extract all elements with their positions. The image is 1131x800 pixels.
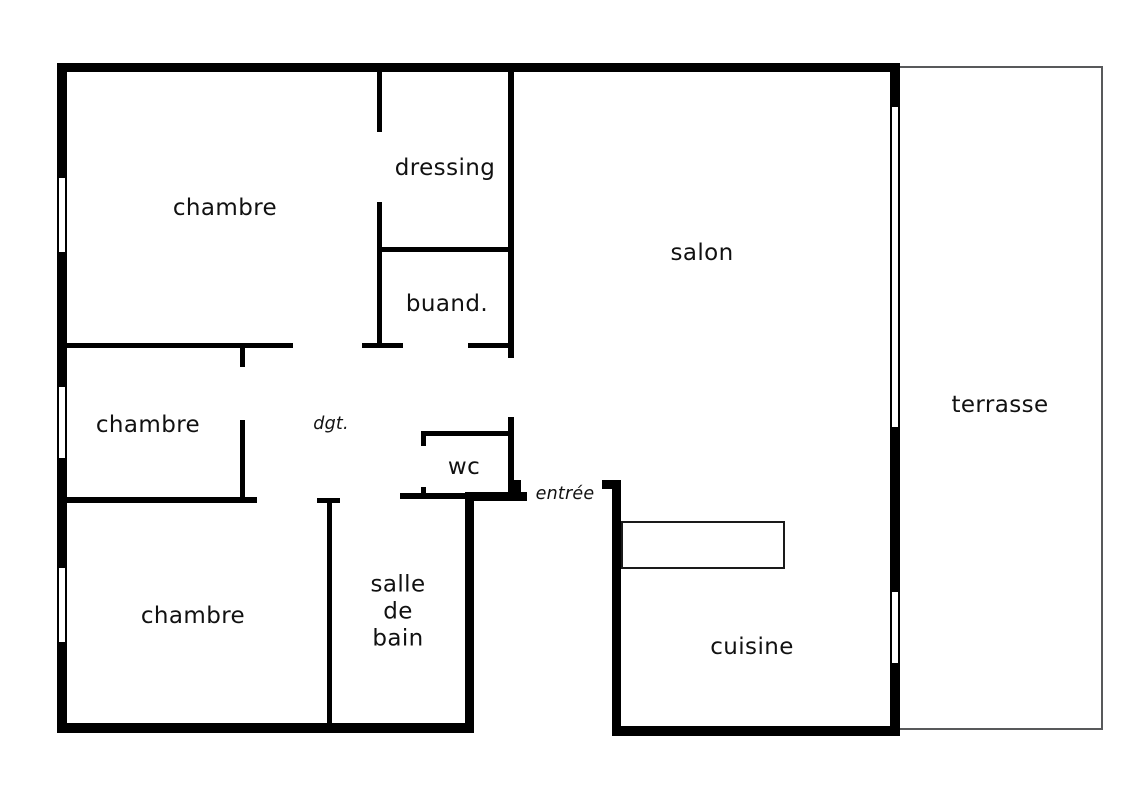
wall-bedroom-middle-right <box>240 420 245 502</box>
room-label-bedroom-middle: chambre <box>96 412 200 438</box>
wall-wc-bottom <box>400 493 512 499</box>
room-label-bedroom-top: chambre <box>173 195 277 221</box>
room-label-bathroom-line3: bain <box>370 626 425 653</box>
wall-exterior-right-b <box>890 427 900 592</box>
window-bedroom-middle <box>57 387 67 458</box>
wall-exterior-left-a <box>57 63 67 178</box>
room-label-bathroom-line2: de <box>370 599 425 626</box>
room-label-bathroom: salle de bain <box>370 572 425 653</box>
room-label-dressing: dressing <box>395 155 495 181</box>
room-label-bathroom-line1: salle <box>370 572 425 599</box>
wall-wc-right <box>508 417 514 480</box>
door-jamb-bedroom-top <box>240 348 245 367</box>
wall-exterior-left-b <box>57 252 67 387</box>
kitchen-counter <box>621 521 785 569</box>
wall-laundry-bottom-right <box>468 343 512 348</box>
door-jamb-wc-upper <box>421 431 426 446</box>
wall-kitchen-left <box>612 480 621 736</box>
wall-bedroom-top-bottom <box>65 343 293 348</box>
wall-kitchen-bottom <box>612 726 900 736</box>
wall-wc-top <box>421 431 511 436</box>
wall-exterior-left-c <box>57 458 67 568</box>
room-label-kitchen: cuisine <box>710 634 794 660</box>
wall-exterior-bottom-left <box>57 723 472 733</box>
wall-bathroom-left <box>327 498 332 723</box>
room-label-living-room: salon <box>670 240 733 266</box>
wall-laundry-bottom-left <box>362 343 403 348</box>
wall-bedroom-middle-bottom <box>65 497 257 503</box>
floor-plan: chambre chambre chambre dressing buand. … <box>0 0 1131 800</box>
wall-exterior-left-d <box>57 642 67 733</box>
wall-exterior-right-a <box>890 63 900 107</box>
wall-bathroom-right <box>465 493 474 733</box>
room-label-hallway: dgt. <box>313 414 348 434</box>
wall-exterior-top <box>57 63 900 72</box>
wall-dressing-left <box>377 202 382 348</box>
room-label-bedroom-bottom: chambre <box>141 603 245 629</box>
room-label-wc: wc <box>448 454 480 480</box>
door-jamb-dressing-top <box>377 72 382 132</box>
wall-dressing-laundry-divider <box>378 247 512 252</box>
window-kitchen <box>890 592 900 663</box>
wall-living-room-divider <box>508 72 514 358</box>
room-label-laundry: buand. <box>406 291 488 317</box>
room-label-terrace: terrasse <box>951 392 1048 418</box>
room-label-entrance: entrée <box>536 484 595 504</box>
wall-exterior-right-c <box>890 663 900 735</box>
wall-kitchen-left-jamb <box>602 480 621 489</box>
wall-wc-corner-block <box>508 480 521 494</box>
window-bedroom-bottom <box>57 568 67 642</box>
window-living-room <box>890 107 900 427</box>
window-bedroom-top <box>57 178 67 252</box>
